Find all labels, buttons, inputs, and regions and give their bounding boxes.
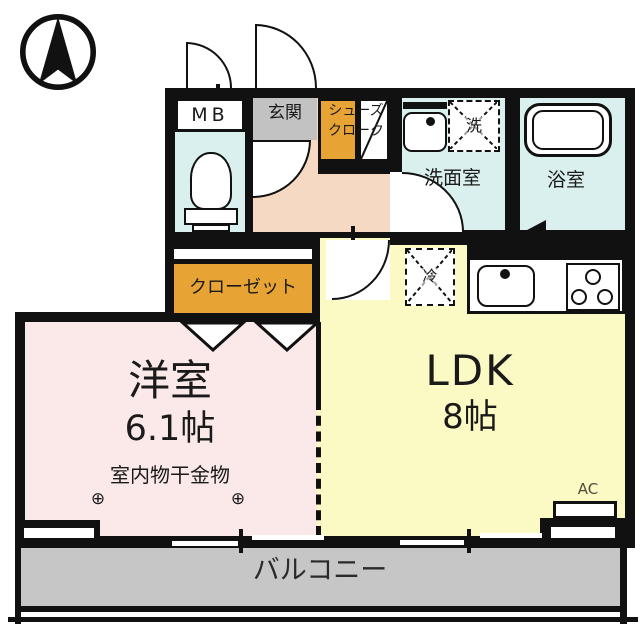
meter-box: MB [175,98,245,132]
window-tick [467,529,471,553]
closet-label: クローゼット [174,278,312,298]
wall-under-shoecloset [318,160,400,174]
wall-right [625,88,635,548]
closet-box: クローゼット [174,264,312,313]
floor-plan: MB シューズ クローク 洗 洗面室 浴室 玄関 クローゼット [0,0,640,639]
western-room-size: 6.1帖 [80,410,260,449]
wall-bath-separator [505,98,520,238]
closet-track [174,249,312,259]
bathroom-door-mark [512,220,546,238]
washroom-label: 洗面室 [400,168,505,189]
western-room-label: 洋室 6.1帖 [80,358,260,449]
balcony-label: バルコニー [170,556,470,586]
balcony-railing [8,617,638,622]
bathroom-label: 浴室 [516,170,616,191]
ac-label: AC [558,481,618,498]
genkan-label: 玄関 [253,104,317,123]
bathtub-inner-icon [532,110,604,150]
washer-kanji: 洗 [450,117,498,135]
window-left-slot [24,528,94,538]
wall-left-upper [165,88,175,245]
refrigerator-icon: 冷 [405,248,455,306]
shoe-closet-label: シューズ クローク [316,101,396,142]
stove-burner-icon [571,289,587,305]
ldk-window-pane [480,533,542,538]
compass-north-icon [18,12,98,92]
wall-western-top [15,312,175,322]
wall-kitchen-bar [467,245,625,257]
ldk-window-pane [400,540,464,545]
washbasin-icon [403,112,447,152]
western-window-pane [172,541,238,546]
balcony-left-edge [15,548,21,624]
drying-hook-icon: ⊕ [228,490,248,509]
ac-corner-slot [551,527,615,538]
toilet-base-icon [192,224,230,232]
ldk-size: 8帖 [385,399,555,436]
washbasin-counter [403,102,447,109]
window-tick [239,529,243,553]
western-window-pane [252,535,324,540]
wall-top [165,88,635,98]
sink-faucet-icon [500,269,510,279]
ldk-name: LDK [385,348,555,394]
toilet-icon [190,152,232,210]
washbasin-faucet-icon [426,117,435,126]
toilet-tank-icon [184,208,238,225]
entrance-door-arc [255,24,317,88]
balcony-right-edge [620,548,627,624]
drying-hardware-label: 室内物干金物 [60,464,280,486]
stove-burner-icon [585,269,601,285]
mb-door-arc [186,42,232,88]
fridge-kanji: 冷 [407,268,453,285]
wall-toilet-right [245,98,253,232]
ac-unit [553,501,617,519]
mb-label: MB [178,105,242,126]
balcony-bottom-edge [15,606,627,612]
drying-hook-icon: ⊕ [88,490,108,509]
wall-western-left [15,312,25,548]
partition-dashed [316,400,321,536]
western-room-name: 洋室 [80,358,260,404]
closet-folding-door-icon [180,322,320,352]
ldk-label: LDK 8帖 [385,348,555,437]
ldk-door-header [320,232,400,238]
stove-burner-icon [597,289,613,305]
washing-machine-icon: 洗 [448,100,500,152]
